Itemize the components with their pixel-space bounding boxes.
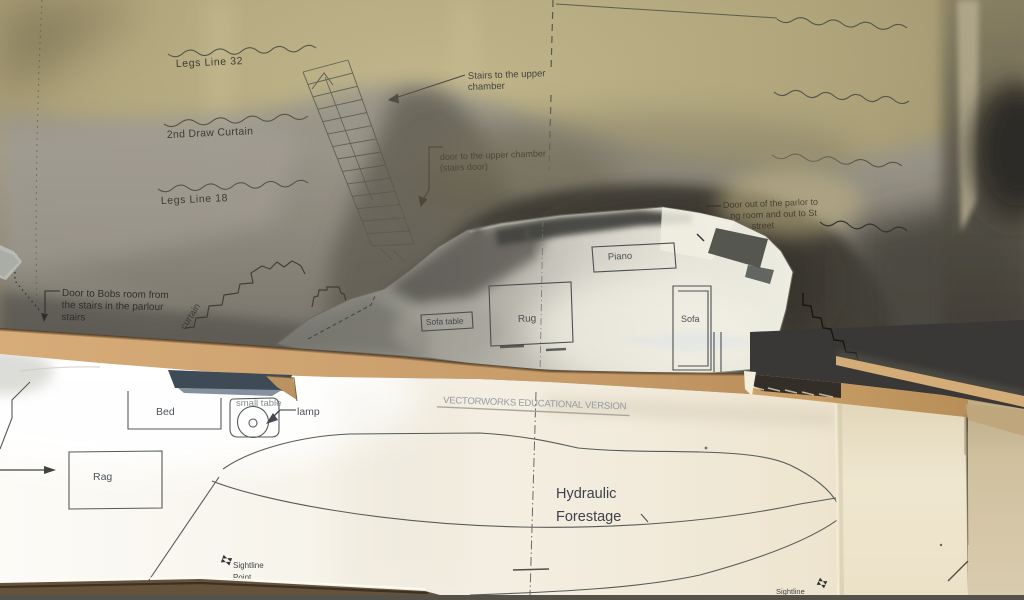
svg-text:Forestage: Forestage [556, 509, 621, 525]
svg-text:Bed: Bed [156, 406, 175, 418]
svg-text:Point: Point [233, 573, 252, 582]
svg-text:lamp: lamp [297, 406, 320, 418]
svg-text:chamber: chamber [468, 81, 505, 93]
svg-text:the stairs in the parlour: the stairs in the parlour [62, 300, 165, 313]
svg-text:Rug: Rug [518, 313, 537, 325]
svg-text:(stairs door): (stairs door) [440, 161, 488, 173]
svg-text:street: street [751, 220, 774, 231]
svg-text:stairs: stairs [61, 312, 85, 323]
svg-text:Sofa: Sofa [681, 314, 700, 324]
svg-text:Sightline: Sightline [776, 587, 805, 595]
svg-text:Rag: Rag [93, 471, 112, 483]
svg-text:Sofa table: Sofa table [426, 316, 464, 327]
svg-text:Sightline: Sightline [233, 561, 264, 570]
svg-text:Piano: Piano [608, 251, 633, 263]
svg-text:Door to Bobs room from: Door to Bobs room from [62, 288, 169, 301]
svg-text:Hydraulic: Hydraulic [556, 486, 616, 502]
